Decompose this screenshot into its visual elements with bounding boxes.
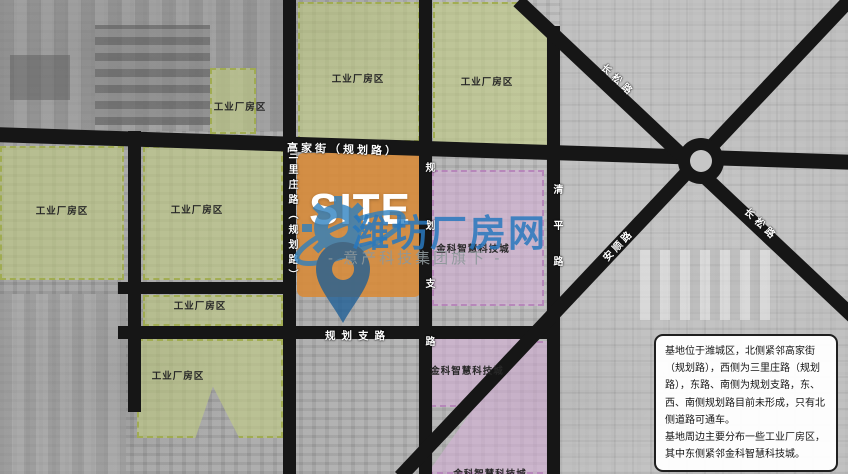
site-description-paragraph-2: 基地周边主要分布一些工业厂房区，其中东侧紧邻金科智慧科技城。 xyxy=(665,429,827,463)
road-label-planned-branch-horizontal: 规划支路 xyxy=(325,328,391,343)
roundabout-island xyxy=(690,150,712,172)
site-description-paragraph-1: 基地位于潍城区，北侧紧邻高家街（规划路），西侧为三里庄路（规划路），东路、南侧为… xyxy=(665,343,827,429)
jinke-zone-label: 金科智慧科技城 xyxy=(430,363,504,377)
aerial-building-block xyxy=(95,25,210,125)
road-label-planned-branch-vertical: 规划支路 xyxy=(421,162,436,394)
industrial-zone-label: 工业厂房区 xyxy=(461,74,514,88)
road-mid-minor xyxy=(118,282,296,294)
industrial-zone-label: 工业厂房区 xyxy=(332,71,385,85)
road-label-qingping: 清平路 xyxy=(549,184,564,292)
site-analysis-map: 高家街（规划路） 三里庄路（规划路） 规划支路 清平路 长松路 长松路 安顺路 … xyxy=(0,0,848,474)
industrial-zone-label: 工业厂房区 xyxy=(36,203,89,217)
industrial-zone-label: 工业厂房区 xyxy=(214,99,267,113)
watermark-subtitle: - 意产科技集团旗下 - xyxy=(328,247,502,268)
aerial-building-cluster xyxy=(640,250,770,320)
aerial-patch-bottomleft xyxy=(0,294,126,474)
industrial-zone-label: 工业厂房区 xyxy=(171,202,224,216)
site-description-box: 基地位于潍城区，北侧紧邻高家街（规划路），西侧为三里庄路（规划路），东路、南侧为… xyxy=(654,334,838,472)
road-west-minor xyxy=(128,131,141,412)
industrial-zone-label: 工业厂房区 xyxy=(174,298,227,312)
jinke-zone-label: 金科智慧科技城 xyxy=(453,466,527,474)
aerial-building-block xyxy=(10,55,70,100)
industrial-zone-label: 工业厂房区 xyxy=(152,368,205,382)
